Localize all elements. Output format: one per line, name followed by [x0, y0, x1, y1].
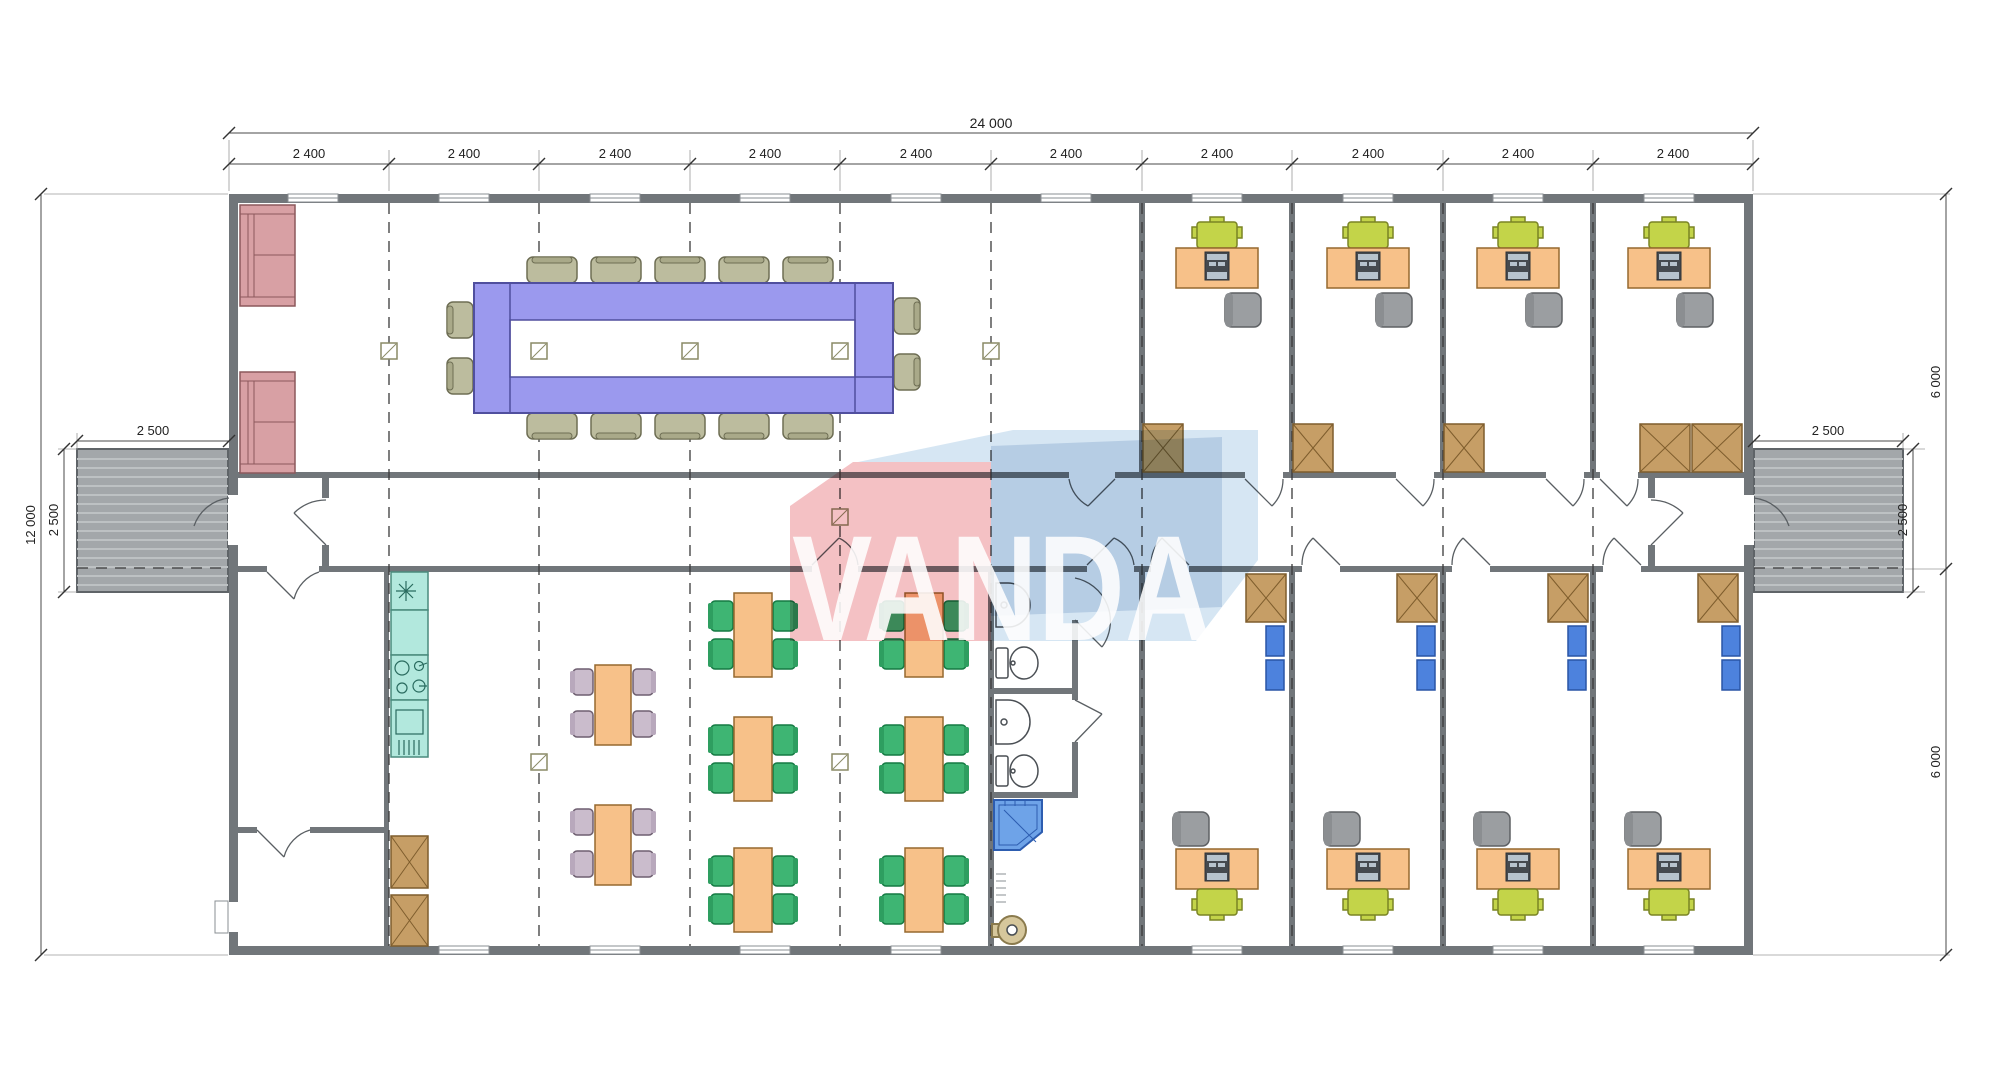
office-workstation: [1474, 812, 1559, 920]
kitchen-counter: [391, 610, 428, 655]
office-workstation: [1324, 812, 1409, 920]
dim-total-height: 12 000: [23, 505, 38, 545]
dim-module: 2 400: [448, 146, 481, 161]
dim-module: 2 400: [900, 146, 933, 161]
lounge-sofas: [240, 205, 295, 473]
sofa: [240, 372, 295, 473]
office-workstation: [1477, 217, 1562, 327]
floor-plan-canvas: 24 000 2 400 2 400 2 400 2 400 2 400 2 4…: [0, 0, 2000, 1069]
office-workstation: [1625, 812, 1710, 920]
right-entrance-ramp: [1754, 449, 1903, 592]
offices-bottom: [1173, 574, 1740, 920]
kitchen-block: [391, 572, 428, 946]
office-workstation: [1327, 217, 1412, 327]
sink: [996, 700, 1030, 744]
dim-right-upper: 6 000: [1928, 366, 1943, 399]
toilet: [996, 755, 1038, 787]
watermark-logo-text: VANDA: [792, 504, 1212, 672]
dining-tables: [570, 665, 656, 885]
office-workstation: [1176, 217, 1261, 327]
dim-right-lower: 6 000: [1928, 746, 1943, 779]
kitchen-stove: [391, 655, 428, 700]
dim-module: 2 400: [599, 146, 632, 161]
office-workstation: [1628, 217, 1713, 327]
water-heater: [992, 916, 1026, 944]
entry-side-threshold: [215, 901, 228, 933]
left-entrance-ramp: [77, 449, 228, 592]
dim-total-width: 24 000: [970, 115, 1013, 131]
sofa: [240, 205, 295, 306]
dim-module: 2 400: [293, 146, 326, 161]
dim-module: 2 400: [1201, 146, 1234, 161]
radiator: [996, 874, 1006, 902]
floor-plan-drawing: 24 000 2 400 2 400 2 400 2 400 2 400 2 4…: [0, 0, 2000, 1069]
office-workstation: [1173, 812, 1258, 920]
dim-module: 2 400: [1502, 146, 1535, 161]
dim-left-ramp-width: 2 500: [137, 423, 170, 438]
dim-module: 2 400: [1657, 146, 1690, 161]
shower-cabin: [994, 800, 1042, 850]
dim-module: 2 400: [1050, 146, 1083, 161]
dim-right-ramp-depth: 2 500: [1895, 504, 1910, 537]
dim-module: 2 400: [1352, 146, 1385, 161]
dim-left-ramp-depth: 2 500: [46, 504, 61, 537]
dim-module: 2 400: [749, 146, 782, 161]
dim-right-ramp-width: 2 500: [1812, 423, 1845, 438]
vanda-watermark: VANDA: [790, 430, 1258, 672]
